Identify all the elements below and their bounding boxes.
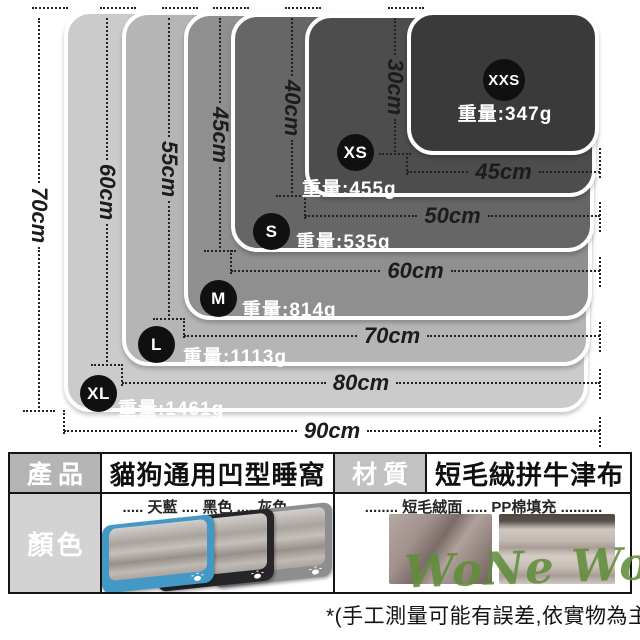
paw-print-icon	[194, 575, 201, 581]
dotted-line-segment	[38, 18, 40, 183]
size-badge-s: S	[253, 213, 290, 250]
height-dim-label-box: 45cm	[192, 103, 248, 167]
dim-tick	[32, 7, 68, 9]
height-dim-label-m: 55cm	[156, 141, 182, 197]
width-dim-xl: 90cm	[64, 418, 600, 444]
dotted-line-segment	[168, 201, 170, 320]
dotted-line-segment	[451, 270, 600, 272]
dim-tick	[599, 202, 601, 232]
height-dim-xxs: 30cm	[385, 18, 405, 155]
dim-tick	[230, 250, 232, 274]
height-dim-s: 45cm	[210, 18, 230, 252]
paw-print-icon	[312, 569, 319, 575]
dim-tick	[285, 7, 321, 9]
bed-photo-blue	[102, 514, 214, 592]
dim-tick	[406, 153, 408, 175]
width-dim-l: 80cm	[122, 370, 600, 396]
dotted-line-segment	[122, 382, 326, 384]
dotted-line-segment	[64, 430, 297, 432]
size-badge-xl: XL	[80, 375, 117, 412]
dotted-line-segment	[106, 224, 108, 366]
height-dim-label-xs: 40cm	[279, 79, 305, 135]
height-dim-label-box: 30cm	[367, 55, 423, 119]
size-badge-xs: XS	[337, 134, 374, 171]
width-dim-label-l: 80cm	[326, 370, 396, 396]
size-badge-xxs: XXS	[483, 59, 525, 101]
dotted-line-segment	[539, 171, 600, 173]
dotted-line-segment	[394, 18, 396, 55]
height-dim-label-l: 60cm	[94, 164, 120, 220]
material-value-cell: 短毛絨拼牛津布	[427, 454, 632, 494]
dotted-line-segment	[291, 140, 293, 198]
dim-tick	[599, 257, 601, 287]
dotted-line-segment	[291, 18, 293, 76]
dotted-line-segment	[394, 119, 396, 156]
dotted-line-segment	[219, 167, 221, 252]
dim-tick	[63, 410, 65, 434]
dim-tick	[213, 7, 249, 9]
height-dim-label-box: 55cm	[141, 137, 197, 201]
dotted-line-segment	[427, 335, 600, 337]
dotted-line-segment	[219, 18, 221, 103]
size-badge-m: M	[200, 280, 237, 317]
weight-label-xl: 重量:1461g	[118, 394, 224, 421]
height-dim-xl: 70cm	[29, 18, 49, 412]
weight-label-l: 重量:1113g	[183, 342, 287, 369]
dotted-line-segment	[231, 270, 380, 272]
dotted-line-segment	[38, 247, 40, 412]
height-dim-l: 60cm	[97, 18, 117, 366]
dim-tick	[121, 364, 123, 386]
watermark: WoNe WoNe	[403, 534, 640, 598]
dim-tick	[162, 7, 198, 9]
dotted-line-segment	[488, 215, 600, 217]
dim-tick	[100, 7, 136, 9]
dotted-line-segment	[184, 335, 357, 337]
paw-print-icon	[254, 573, 261, 579]
height-dim-xs: 40cm	[282, 18, 302, 197]
dim-tick	[91, 364, 123, 366]
height-dim-m: 55cm	[159, 18, 179, 320]
bed-cushion	[109, 519, 207, 581]
dim-tick	[183, 318, 185, 338]
dim-tick	[599, 369, 601, 399]
width-dim-s: 60cm	[231, 258, 600, 284]
dim-tick	[153, 318, 185, 320]
height-dim-label-xxs: 30cm	[382, 58, 408, 114]
material-label-cell: 材質	[335, 454, 427, 494]
width-dim-label-xxs: 45cm	[468, 159, 538, 185]
dotted-line-segment	[305, 215, 417, 217]
height-dim-label-box: 70cm	[11, 183, 67, 247]
dim-tick	[23, 410, 55, 412]
height-dim-label-xl: 70cm	[26, 187, 52, 243]
dim-tick	[599, 417, 601, 447]
weight-label-s: 重量:535g	[296, 227, 391, 254]
product-label-cell: 產品	[10, 454, 102, 494]
dotted-line-segment	[407, 171, 468, 173]
dotted-line-segment	[168, 18, 170, 137]
dim-tick	[599, 148, 601, 178]
dim-tick	[599, 322, 601, 352]
weight-label-xxs: 重量:347g	[428, 99, 582, 126]
color-options-cell: ..... 天藍 .... 黑色 .... 灰色 .....	[102, 494, 335, 592]
height-dim-label-box: 40cm	[264, 76, 320, 140]
dotted-line-segment	[367, 430, 600, 432]
width-dim-label-m: 70cm	[357, 323, 427, 349]
weight-label-m: 重量:814g	[242, 295, 337, 322]
color-label-cell: 顏色	[10, 494, 102, 592]
width-dim-xs: 50cm	[305, 203, 600, 229]
width-dim-label-xl: 90cm	[297, 418, 367, 444]
product-value-cell: 貓狗通用凹型睡窩	[102, 454, 335, 494]
size-badge-l: L	[138, 326, 175, 363]
dim-tick	[388, 7, 424, 9]
dotted-line-segment	[396, 382, 600, 384]
height-dim-label-box: 60cm	[79, 160, 135, 224]
dotted-line-segment	[106, 18, 108, 160]
footnote: *(手工測量可能有誤差,依實物為主)	[326, 600, 640, 630]
size-chart-infographic: XL L M S XS XXS 重量:1461g 重量:1113g 重量:814…	[0, 0, 640, 640]
width-dim-xxs: 45cm	[407, 159, 600, 185]
width-dim-label-xs: 50cm	[417, 203, 487, 229]
height-dim-label-s: 45cm	[207, 107, 233, 163]
width-dim-label-s: 60cm	[380, 258, 450, 284]
weight-label-xs: 重量:455g	[302, 174, 397, 201]
